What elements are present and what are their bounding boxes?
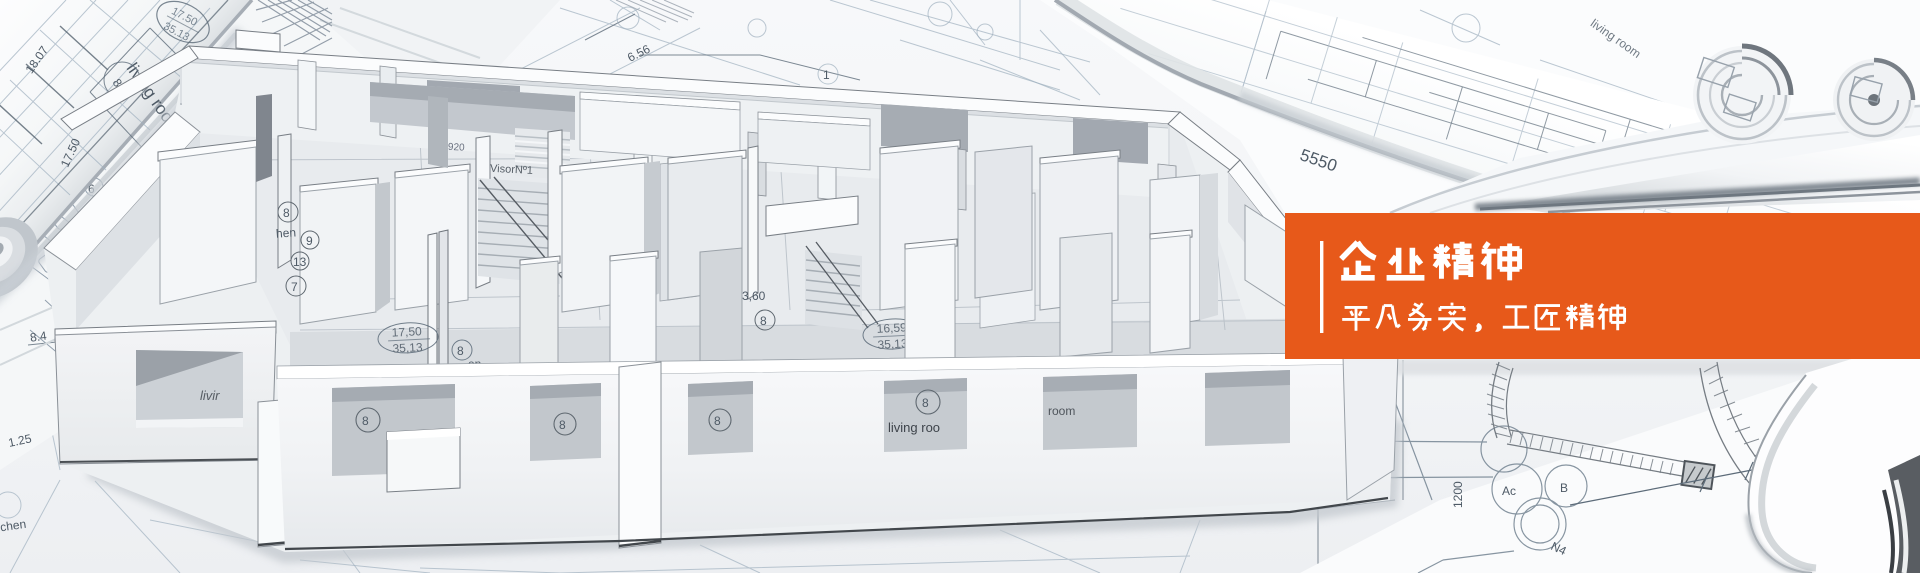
svg-text:1: 1: [823, 68, 830, 82]
svg-text:16,59: 16,59: [876, 320, 907, 336]
svg-text:3,60: 3,60: [742, 289, 766, 303]
svg-text:8: 8: [457, 344, 464, 358]
svg-text:Ac: Ac: [1502, 484, 1516, 498]
svg-text:8: 8: [283, 206, 290, 220]
svg-text:hen: hen: [276, 225, 297, 240]
svg-text:1200: 1200: [1451, 481, 1465, 508]
svg-text:8: 8: [760, 314, 767, 328]
svg-text:9: 9: [306, 234, 313, 248]
svg-text:8: 8: [922, 396, 929, 410]
svg-text:8: 8: [362, 414, 369, 428]
svg-text:8.4: 8.4: [29, 329, 48, 345]
svg-text:8: 8: [559, 418, 566, 432]
svg-text:VisorNº1: VisorNº1: [490, 163, 534, 177]
svg-text:room: room: [1048, 404, 1075, 418]
svg-text:35,13: 35,13: [392, 340, 423, 356]
svg-text:8: 8: [714, 414, 721, 428]
svg-text:living roo: living roo: [888, 420, 940, 435]
svg-text:17,50: 17,50: [391, 324, 422, 340]
svg-text:13: 13: [293, 255, 307, 269]
svg-text:7: 7: [291, 280, 298, 294]
svg-text:livir: livir: [200, 388, 220, 403]
svg-text:B: B: [1560, 481, 1568, 495]
svg-text:920: 920: [448, 142, 466, 154]
svg-text:35,13: 35,13: [877, 336, 908, 352]
